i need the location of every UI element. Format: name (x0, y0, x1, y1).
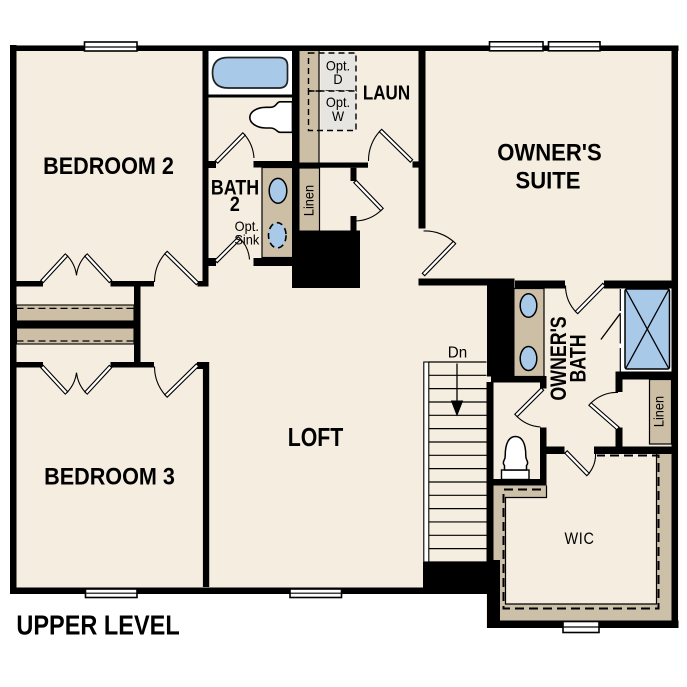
svg-text:W: W (332, 109, 345, 124)
svg-text:SUITE: SUITE (516, 166, 581, 193)
svg-text:LAUN: LAUN (363, 81, 410, 104)
svg-text:OWNER'S: OWNER'S (497, 138, 601, 165)
svg-text:BEDROOM 2: BEDROOM 2 (43, 152, 174, 179)
svg-text:2: 2 (230, 193, 240, 217)
svg-text:UPPER LEVEL: UPPER LEVEL (16, 611, 179, 641)
svg-text:WIC: WIC (564, 530, 594, 548)
svg-text:BEDROOM 3: BEDROOM 3 (44, 462, 175, 489)
svg-text:LOFT: LOFT (288, 423, 344, 453)
svg-text:BATH: BATH (567, 334, 591, 382)
svg-text:Linen: Linen (651, 396, 666, 427)
svg-text:Sink: Sink (234, 232, 259, 247)
svg-text:D: D (333, 72, 342, 87)
svg-text:Linen: Linen (301, 185, 316, 216)
svg-text:Dn: Dn (448, 344, 467, 361)
